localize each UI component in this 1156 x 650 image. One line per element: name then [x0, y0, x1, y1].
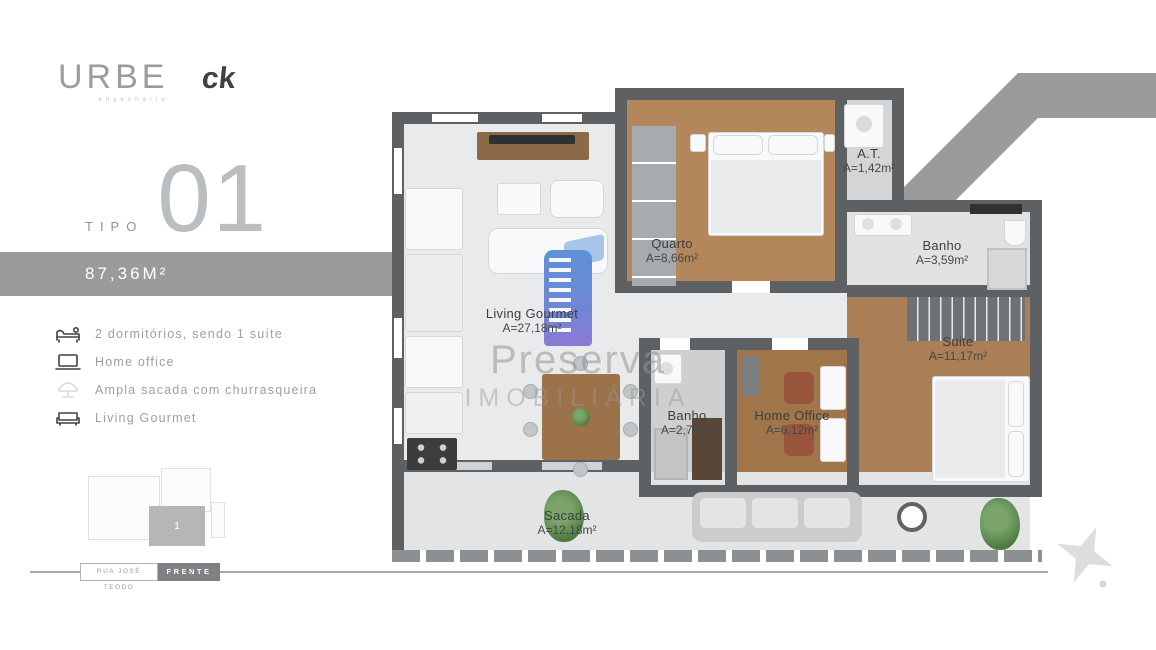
sofa-icon: [55, 409, 81, 427]
shower: [987, 248, 1027, 290]
towel-rack: [970, 204, 1022, 214]
coffee-table: [497, 183, 541, 215]
feature-label: Living Gourmet: [95, 411, 197, 425]
pillow: [768, 135, 818, 155]
blanket: [935, 380, 1005, 478]
total-area-banner: 87,36M²: [0, 252, 404, 296]
wall: [615, 88, 627, 124]
floorplan-sheet: URBE engenharia ck TIPO 01 87,36M² 2 dor…: [0, 0, 1156, 650]
building-keyplan: 1: [85, 462, 235, 554]
window-opening: [542, 114, 582, 122]
balcony-icon: [55, 381, 81, 399]
ck-logo: ck: [201, 64, 238, 94]
unit-type: TIPO 01: [85, 158, 268, 240]
laptop-icon: [55, 353, 81, 371]
balcony-railing: [392, 550, 1042, 562]
wall: [847, 350, 859, 485]
room-label-living: Living Gourmet A=27,18m²: [486, 306, 578, 335]
stove: [407, 438, 457, 470]
toilet: [1004, 220, 1026, 246]
feature-item: Living Gourmet: [55, 409, 317, 427]
tv: [489, 135, 575, 144]
wall: [615, 88, 904, 100]
watermark-text-1: Preserva: [448, 338, 708, 383]
sofa-cushion: [700, 498, 746, 528]
logo-row: URBE engenharia ck: [58, 60, 236, 103]
office-chair: [784, 372, 814, 404]
dining-chair: [523, 422, 538, 437]
room-label-office: Home Office A=6,12m²: [754, 408, 829, 437]
feature-item: Ampla sacada com churrasqueira: [55, 381, 317, 399]
balcony-plant: [980, 498, 1020, 550]
room-label-banho2: Banho A=2,70m²: [661, 408, 713, 437]
keyplan-block: [211, 502, 225, 538]
wall: [615, 124, 627, 293]
pillow: [713, 135, 763, 155]
feature-item: Home office: [55, 353, 317, 371]
wall: [1030, 200, 1042, 497]
bed-icon: [55, 325, 81, 343]
keyplan-highlighted-unit: 1: [149, 506, 205, 546]
sofa-cushion: [804, 498, 850, 528]
feature-label: Ampla sacada com churrasqueira: [95, 383, 317, 397]
room-label-sacada: Sacada A=12,18m²: [537, 508, 596, 537]
room-label-quarto: Quarto A=8,66m²: [646, 236, 698, 265]
sink-basin: [890, 218, 902, 230]
wall: [725, 350, 737, 485]
nightstand: [690, 134, 706, 152]
pillow: [1008, 431, 1024, 477]
armchair: [550, 180, 604, 218]
feature-item: 2 dormitórios, sendo 1 suíte: [55, 325, 317, 343]
window-opening: [432, 114, 478, 122]
urbe-logo-text: URBE: [58, 58, 168, 96]
door-opening: [732, 281, 770, 293]
front-orientation-badge: FRENTE: [158, 563, 220, 581]
office-shelf: [742, 356, 760, 396]
nightstand: [824, 134, 835, 152]
room-label-at: A.T. A=1,42m²: [843, 146, 895, 175]
feature-label: 2 dormitórios, sendo 1 suíte: [95, 327, 283, 341]
sofa-cushion: [752, 498, 798, 528]
pillow: [1008, 381, 1024, 427]
floorplan-render: Preserva IMOBILIÁRIA Living Gourmet A=27…: [392, 88, 1042, 562]
water-heater-dial: [856, 116, 872, 132]
blanket: [711, 160, 821, 233]
feature-list: 2 dormitórios, sendo 1 suíte Home office…: [55, 325, 317, 427]
window-opening: [394, 408, 402, 444]
window-opening: [394, 318, 402, 358]
kitchen-cabinet: [405, 188, 463, 250]
door-opening: [772, 338, 808, 350]
dining-chair: [573, 462, 588, 477]
compass-icon: [1048, 518, 1122, 602]
office-desk: [820, 366, 846, 410]
dining-chair: [623, 422, 638, 437]
keyplan-unit-number: 1: [174, 521, 180, 532]
unit-type-label: TIPO: [85, 219, 143, 234]
kitchen-counter: [405, 254, 463, 332]
round-table: [897, 502, 927, 532]
room-label-suite: Suite A=11,17m²: [929, 334, 987, 363]
urbe-logo-subtext: engenharia: [58, 97, 168, 103]
feature-label: Home office: [95, 355, 175, 369]
urbe-logo: URBE engenharia: [58, 60, 168, 103]
unit-type-number: 01: [157, 158, 268, 240]
window-opening: [394, 148, 402, 194]
glass-door: [542, 462, 602, 470]
sink-basin: [862, 218, 874, 230]
room-label-banho1: Banho A=3,59m²: [916, 238, 968, 267]
wall: [392, 112, 627, 124]
street-name-label: RUA JOSÉ TEODO: [80, 563, 158, 581]
